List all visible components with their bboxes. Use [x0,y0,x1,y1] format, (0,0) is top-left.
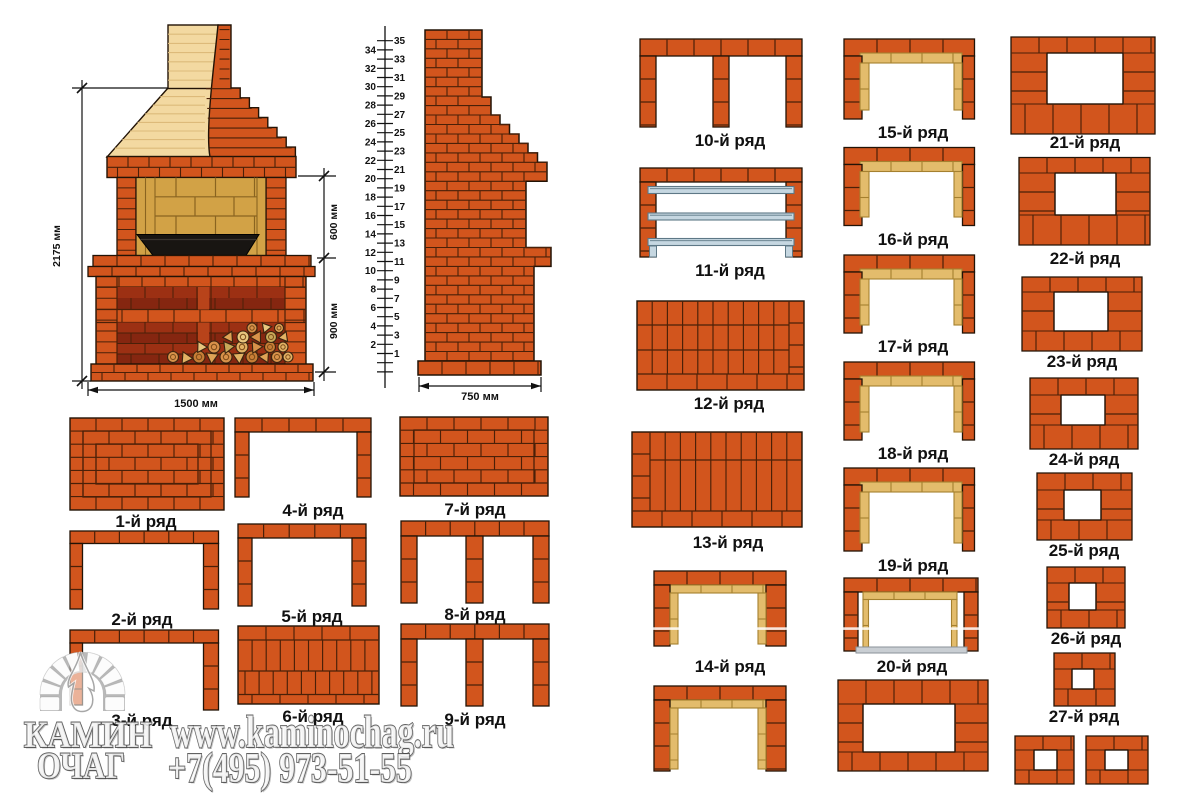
svg-text:8: 8 [370,285,376,296]
svg-text:3: 3 [394,331,400,342]
svg-text:2175 мм: 2175 мм [51,225,63,267]
svg-text:12: 12 [365,248,377,259]
svg-text:18: 18 [365,193,377,204]
svg-text:15: 15 [394,220,406,231]
svg-text:7-й ряд: 7-й ряд [444,500,505,519]
svg-text:10-й ряд: 10-й ряд [695,131,766,150]
svg-text:13-й ряд: 13-й ряд [693,533,764,552]
svg-text:24-й ряд: 24-й ряд [1049,450,1120,469]
svg-text:10: 10 [365,266,377,277]
svg-text:32: 32 [365,64,377,75]
svg-text:5-й ряд: 5-й ряд [281,607,342,626]
svg-text:4-й ряд: 4-й ряд [282,501,343,520]
svg-text:21: 21 [394,165,406,176]
svg-text:900 мм: 900 мм [328,303,340,339]
svg-text:20-й ряд: 20-й ряд [877,657,948,676]
svg-text:29: 29 [394,91,406,102]
svg-text:28: 28 [365,101,377,112]
svg-text:2-й ряд: 2-й ряд [111,610,172,629]
svg-text:31: 31 [394,73,406,84]
svg-text:35: 35 [394,36,406,47]
svg-text:11: 11 [394,257,405,268]
svg-text:15-й ряд: 15-й ряд [878,123,949,142]
svg-text:33: 33 [394,55,406,66]
svg-text:2: 2 [370,340,376,351]
svg-text:+7(495) 973-51-55: +7(495) 973-51-55 [168,746,412,792]
svg-text:24: 24 [365,137,377,148]
svg-text:14-й ряд: 14-й ряд [695,657,766,676]
svg-text:4: 4 [370,321,376,332]
svg-text:27-й ряд: 27-й ряд [1049,707,1120,726]
svg-text:13: 13 [394,239,406,250]
svg-text:1: 1 [394,349,400,360]
svg-text:750 мм: 750 мм [461,391,499,403]
svg-text:ОЧАГ: ОЧАГ [37,746,125,787]
svg-text:18-й ряд: 18-й ряд [878,444,949,463]
svg-text:26: 26 [365,119,377,130]
svg-text:20: 20 [365,174,377,185]
svg-text:19: 19 [394,183,406,194]
svg-text:5: 5 [394,312,400,323]
svg-text:34: 34 [365,45,377,56]
svg-text:17: 17 [394,202,406,213]
svg-text:22: 22 [365,156,377,167]
svg-text:19-й ряд: 19-й ряд [878,556,949,575]
svg-text:16-й ряд: 16-й ряд [878,230,949,249]
svg-text:14: 14 [365,229,377,240]
svg-text:7: 7 [394,294,400,305]
svg-text:16: 16 [365,211,377,222]
svg-text:1500 мм: 1500 мм [174,398,218,410]
svg-text:25-й ряд: 25-й ряд [1049,541,1120,560]
svg-text:8-й ряд: 8-й ряд [444,605,505,624]
svg-text:22-й ряд: 22-й ряд [1050,249,1121,268]
svg-text:11-й ряд: 11-й ряд [695,261,765,280]
svg-text:1-й ряд: 1-й ряд [115,512,176,531]
svg-text:23-й ряд: 23-й ряд [1047,352,1118,371]
svg-text:9: 9 [394,275,400,286]
svg-text:17-й ряд: 17-й ряд [878,337,949,356]
svg-text:26-й ряд: 26-й ряд [1051,629,1122,648]
svg-text:21-й ряд: 21-й ряд [1050,133,1121,152]
svg-text:600 мм: 600 мм [328,204,340,240]
svg-text:27: 27 [394,110,406,121]
svg-text:25: 25 [394,128,406,139]
svg-text:30: 30 [365,82,377,93]
svg-text:12-й ряд: 12-й ряд [694,394,765,413]
svg-text:23: 23 [394,147,406,158]
svg-text:6: 6 [370,303,376,314]
